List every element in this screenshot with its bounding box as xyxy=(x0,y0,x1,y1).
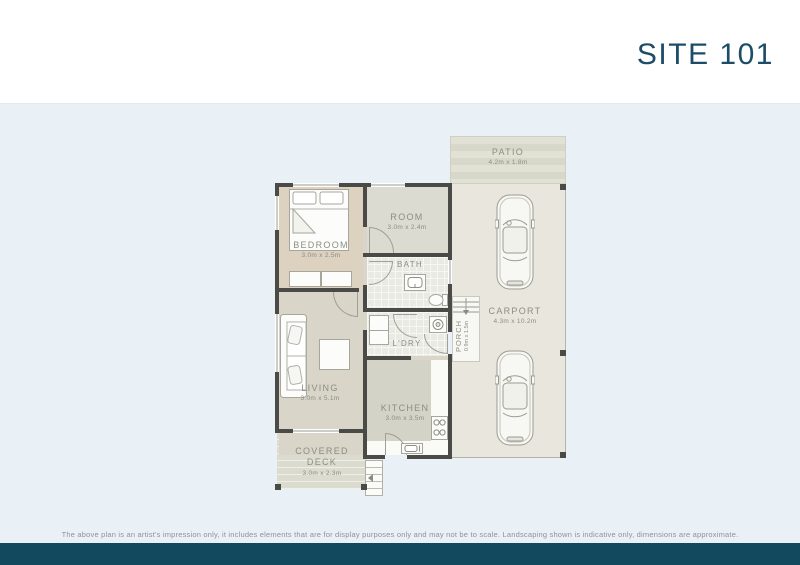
window xyxy=(275,196,279,230)
car-icon xyxy=(495,349,535,447)
deck-label: COVERED DECK 3.0m x 2.3m xyxy=(287,446,357,478)
dresser-icon xyxy=(321,271,352,287)
wall xyxy=(363,253,452,257)
wall xyxy=(363,187,367,227)
patio-label: PATIO 4.2m x 1.8m xyxy=(460,147,556,167)
window xyxy=(293,183,339,187)
page: SITE 101 xyxy=(0,0,800,565)
deck-post xyxy=(275,484,281,490)
wall xyxy=(363,330,367,459)
porch-label: PORCH 0.9m x 1.5m xyxy=(454,301,478,371)
bedroom-label: BEDROOM 3.0m x 2.5m xyxy=(285,240,357,260)
living-label: LIVING 3.0m x 5.1m xyxy=(285,383,355,403)
wall xyxy=(363,356,411,360)
floor-plan: PORCH 0.9m x 1.5m xyxy=(0,0,800,565)
toilet-icon xyxy=(428,293,448,307)
window xyxy=(275,314,279,372)
wall xyxy=(407,455,452,459)
dresser-icon xyxy=(289,271,321,287)
steps-arrow xyxy=(368,474,373,482)
wall xyxy=(448,354,452,459)
kitchen-label: KITCHEN 3.0m x 3.5m xyxy=(370,403,440,423)
window xyxy=(448,260,452,284)
vanity-sink-icon xyxy=(404,274,426,291)
room-label: ROOM 3.0m x 2.4m xyxy=(372,212,442,232)
carport-label: CARPORT 4.3m x 10.2m xyxy=(480,306,550,326)
bath-label: BATH xyxy=(388,260,432,270)
coffee-table-icon xyxy=(319,339,350,370)
window xyxy=(371,183,405,187)
kitchen-sink-icon xyxy=(401,443,423,454)
wall xyxy=(363,308,452,312)
deck-post xyxy=(361,484,367,490)
kitchen-floor xyxy=(367,360,431,441)
carport-post xyxy=(560,452,566,458)
carport-post xyxy=(560,350,566,356)
disclaimer-text: The above plan is an artist's impression… xyxy=(0,530,800,539)
window xyxy=(293,429,339,433)
car-icon xyxy=(495,193,535,291)
washing-machine-icon xyxy=(429,316,447,333)
linen-shelf-line xyxy=(370,330,388,331)
carport-post xyxy=(560,184,566,190)
plan-canvas: PORCH 0.9m x 1.5m xyxy=(0,104,800,543)
wall xyxy=(363,455,385,459)
footer-bar xyxy=(0,543,800,565)
laundry-label: L'DRY xyxy=(382,339,432,349)
